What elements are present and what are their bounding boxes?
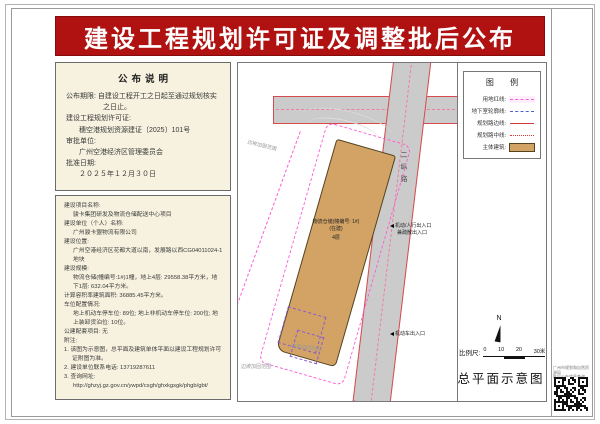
legend-item-building: 主体建筑: — [464, 141, 540, 153]
scale-tick: 10 — [498, 347, 504, 355]
legend-label: 规划路中线: — [477, 131, 506, 139]
legend-rows: 用地红线: 地下室轮廓线: 规划路边线: 规划路中线: 主体建筑: — [464, 93, 540, 153]
legend-panel: 图 例 用地红线: 地下室轮廓线: 规划路边线: 规划路中线: 主体建筑: — [463, 71, 541, 159]
scale-body: 0 10 20 30米 — [483, 347, 545, 360]
legend-label: 主体建筑: — [482, 143, 506, 151]
notice-authority-name: 广州空港经济区管理委员会 — [66, 147, 221, 158]
project-scale-value: 物流仓储(幢编号:1#)1幢，地上4层: 29558.38平方米，地下1层: 6… — [64, 274, 223, 292]
project-parking-label: 车位配置情况: — [64, 301, 223, 310]
project-public-facility: 公建配套项目: 无 — [64, 328, 223, 337]
scale-tick: 20 — [516, 347, 522, 355]
building-label: 物流仓储(幢编号: 1#)(在建) 4层 — [310, 219, 362, 242]
project-panel: 建设项目名称: 骏卡集团研发及物流仓储配送中心项目 建设单位（个人）名称: 广州… — [55, 195, 231, 400]
project-query-url: http://ghzyj.gz.gov.cn/ywpd/csgh/ghxkgsg… — [64, 382, 223, 391]
project-body: 建设项目名称: 骏卡集团研发及物流仓储配送中心项目 建设单位（个人）名称: 广州… — [64, 202, 223, 391]
legend-label: 地下室轮廓线: — [471, 107, 506, 115]
north-arrow-icon — [495, 325, 504, 343]
drawing-column-divider — [457, 63, 458, 401]
entrance-south-label: 机动车出入口 — [395, 331, 425, 337]
entrance-arrow-icon — [390, 224, 394, 228]
north-label: N — [492, 315, 506, 322]
project-location-value: 广州空港经济区花都大道以南，发展路以西CG04011024-1地块 — [64, 247, 223, 265]
entrance-annotation-main: 机动/人行出入口 兼疏散出入口 — [390, 223, 452, 236]
project-far-area: 计算容积率建筑面积: 36885.45平方米。 — [64, 292, 223, 301]
notice-authority-label: 审批单位: — [66, 136, 221, 147]
scale-bar-segments — [483, 356, 545, 360]
notice-date-label: 批准日期: — [66, 158, 221, 169]
project-location-label: 建设位置: — [64, 238, 223, 247]
project-scale-label: 建设规模: — [64, 265, 223, 274]
legend-item-redline: 用地红线: — [464, 93, 540, 105]
notice-date-value: ２０２５年１２月３０日 — [66, 169, 221, 180]
project-owner-label: 建设单位（个人）名称: — [64, 220, 223, 229]
blue-dash-swatch — [509, 108, 535, 115]
scale-tick: 0 — [483, 347, 486, 355]
building-fill-swatch — [509, 143, 535, 152]
project-parking-value: 地上机动车停车位: 89位; 地上非机动车停车位: 200位; 地上装卸货泊位:… — [64, 310, 223, 328]
scale-ticks: 0 10 20 30米 — [483, 347, 545, 355]
notice-permit-number: 穗空港规划资源建证〔2025〕101号 — [66, 125, 221, 136]
scale-bar: 比例尺: 0 10 20 30米 — [459, 347, 545, 360]
legend-label: 规划路边线: — [477, 119, 506, 127]
page-title: 建设工程规划许可证及调整批后公布 — [55, 16, 545, 56]
entrance-main-line1: 机动/人行出入口 — [395, 223, 431, 229]
pink-dash-swatch — [509, 96, 535, 103]
project-remark-2-phone: 2. 建设单位联系电话: 13719287611 — [64, 364, 223, 373]
notice-period: 公布期限: 自建设工程开工之日起至通过规划核实之日止。 — [66, 91, 221, 113]
building-floors-label: 4层 — [310, 235, 362, 242]
plan-caption: 总平面示意图 — [457, 368, 545, 387]
sheet-margin-divider — [551, 8, 552, 416]
legend-item-road-center: 规划路中线: — [464, 129, 540, 141]
scale-label: 比例尺: — [459, 347, 480, 357]
red-dotted-swatch — [509, 132, 535, 139]
site-plan-drawing: 二纵路 物流仓储(幢编号: 1#)(在建) 4层 机动/人行出入口 兼疏散出入口… — [237, 62, 547, 402]
entrance-annotation-south: 机动车出入口 — [390, 331, 450, 338]
legend-label: 用地红线: — [482, 95, 506, 103]
road-horizontal-centerline — [276, 109, 455, 110]
legend-item-road-edge: 规划路边线: — [464, 117, 540, 129]
project-remark-label: 附注: — [64, 337, 223, 346]
project-remark-1: 1. 该图为示意图，总平面及建筑单体平面以建设工程规划许可证附图为准。 — [64, 346, 223, 364]
building-label-text: 物流仓储(幢编号: 1#)(在建) — [310, 219, 362, 233]
entrance-main-line2: 兼疏散出入口 — [390, 230, 452, 237]
notice-permit-label: 建设工程规划许可证: — [66, 113, 221, 124]
notice-header: 公布说明 — [56, 71, 230, 85]
legend-item-basement: 地下室轮廓线: — [464, 105, 540, 117]
slope-note: 边坡加固范围 — [241, 363, 271, 370]
qr-finder-icon — [578, 377, 588, 387]
scale-tick: 30米 — [534, 347, 546, 355]
project-remark-3-label: 3. 查询网址: — [64, 373, 223, 382]
notice-body: 公布期限: 自建设工程开工之日起至通过规划核实之日止。 建设工程规划许可证: 穗… — [66, 91, 221, 181]
project-owner-value: 广州骏卡盟物流有限公司 — [64, 229, 223, 238]
qr-finder-icon — [554, 377, 564, 387]
qr-finder-icon — [554, 401, 564, 411]
project-name-value: 骏卡集团研发及物流仓储配送中心项目 — [64, 211, 223, 220]
notice-panel: 公布说明 公布期限: 自建设工程开工之日起至通过规划核实之日止。 建设工程规划许… — [55, 62, 231, 191]
legend-title: 图 例 — [464, 77, 540, 88]
entrance-arrow-icon — [390, 332, 394, 336]
project-name-label: 建设项目名称: — [64, 202, 223, 211]
slope-note: 边坡加固范围 — [247, 138, 278, 152]
red-solid-swatch — [509, 120, 535, 127]
